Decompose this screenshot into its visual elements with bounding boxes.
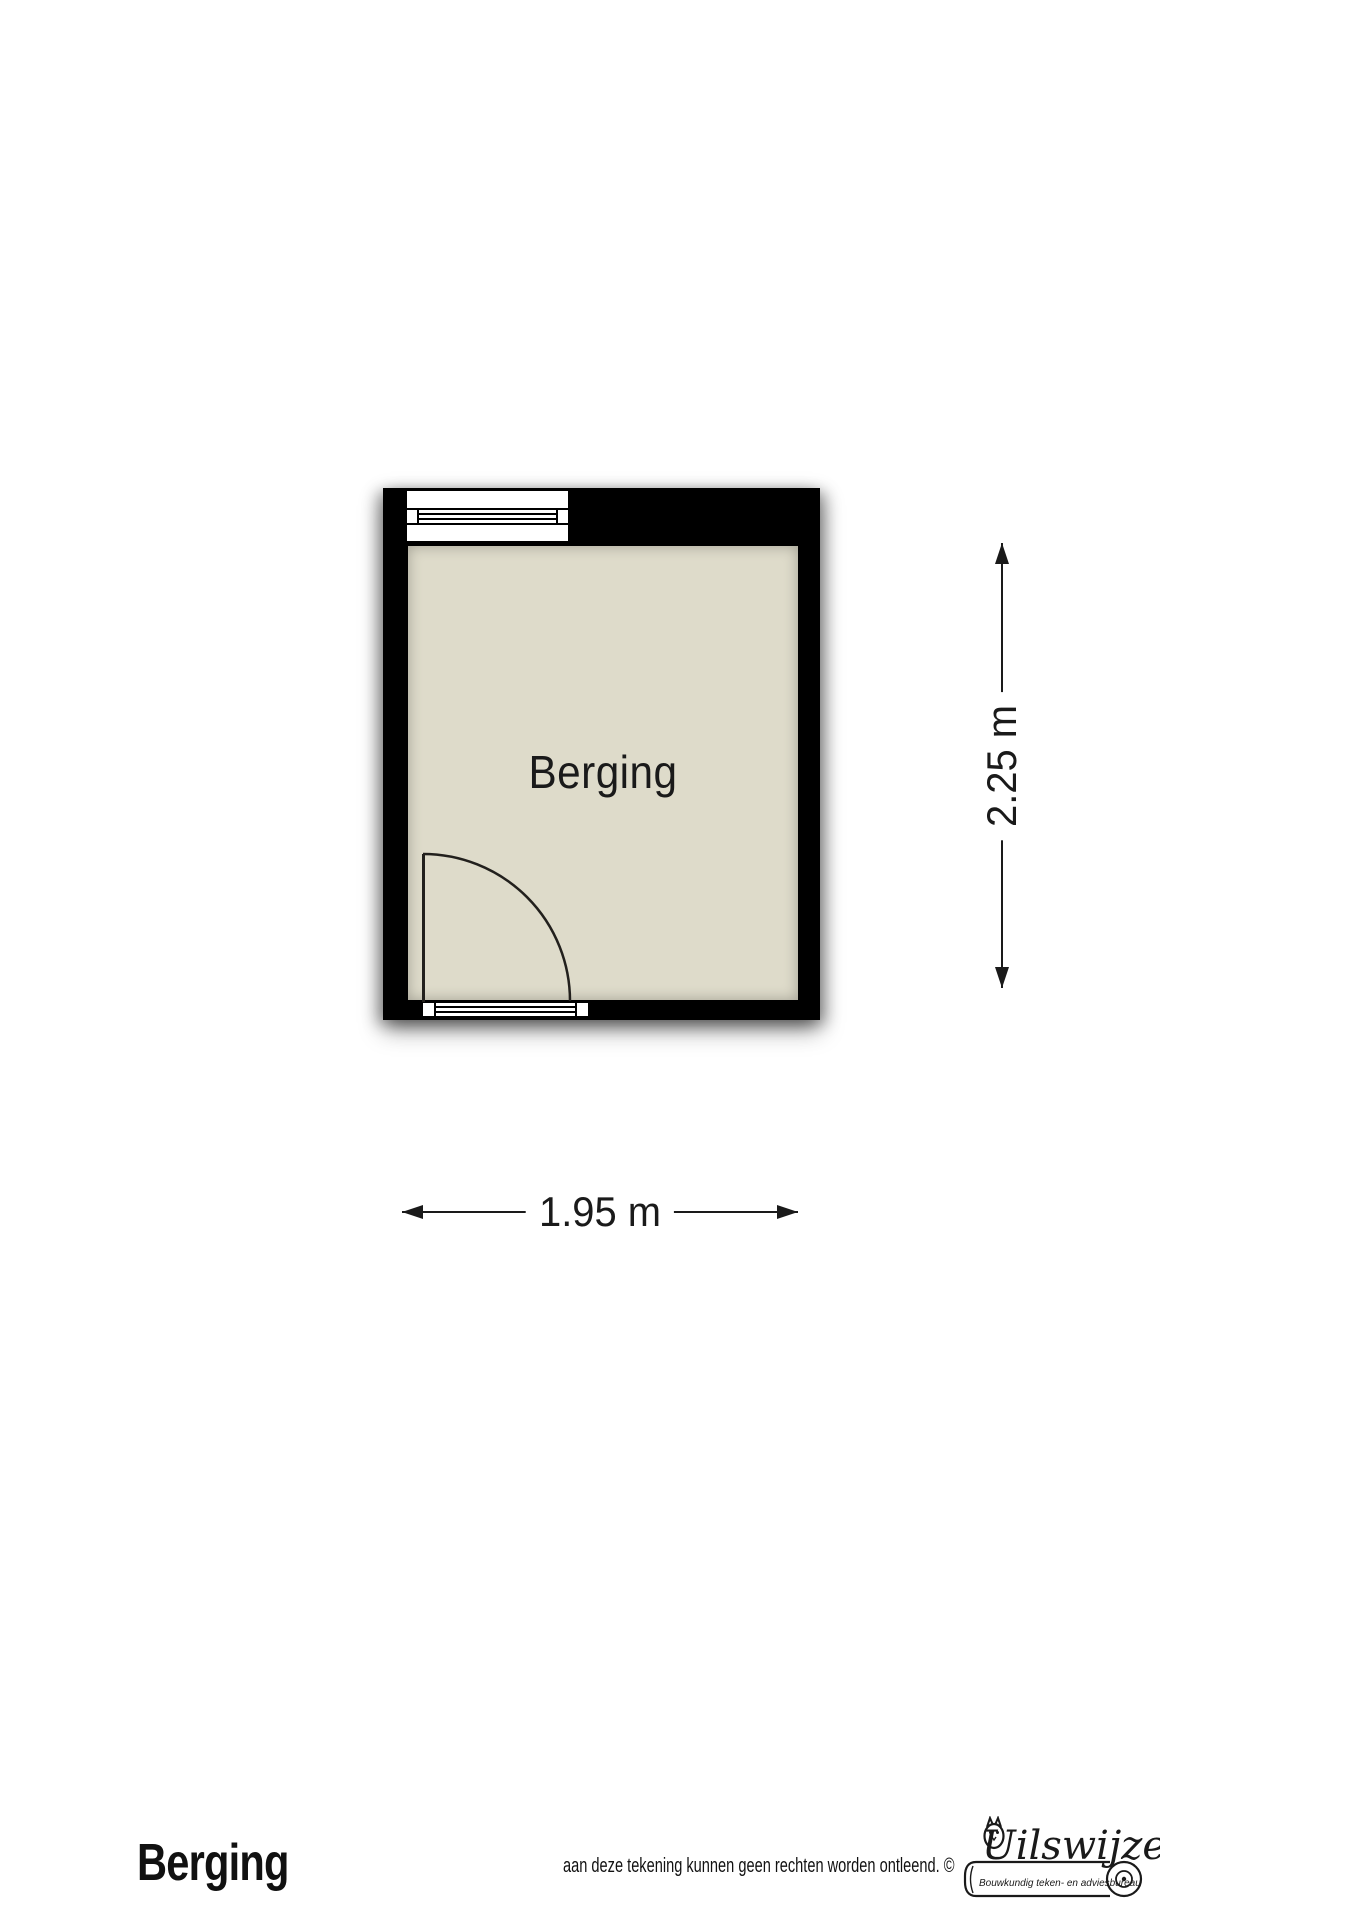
floorplan-page: Berging 2.25 m 1.95 m Berging aan deze t… (0, 0, 1358, 1920)
logo-name: Uilswijze (982, 1823, 1160, 1869)
arrow-right-icon (777, 1205, 798, 1219)
arrow-up-icon (995, 543, 1009, 564)
floorplan-drawing: Berging (383, 488, 820, 1020)
room-label: Berging (424, 745, 783, 799)
dimension-label-vertical: 2.25 m (978, 692, 1026, 841)
page-title: Berging (137, 1833, 289, 1893)
dimension-label-horizontal: 1.95 m (526, 1188, 675, 1236)
uilswijze-logo: Uilswijze Bouwkundig teken- en adviesbur… (960, 1816, 1160, 1916)
arrow-down-icon (995, 967, 1009, 988)
arrow-left-icon (402, 1205, 423, 1219)
logo-subtitle: Bouwkundig teken- en adviesbureau (979, 1878, 1141, 1889)
disclaimer-text: aan deze tekening kunnen geen rechten wo… (563, 1855, 954, 1878)
